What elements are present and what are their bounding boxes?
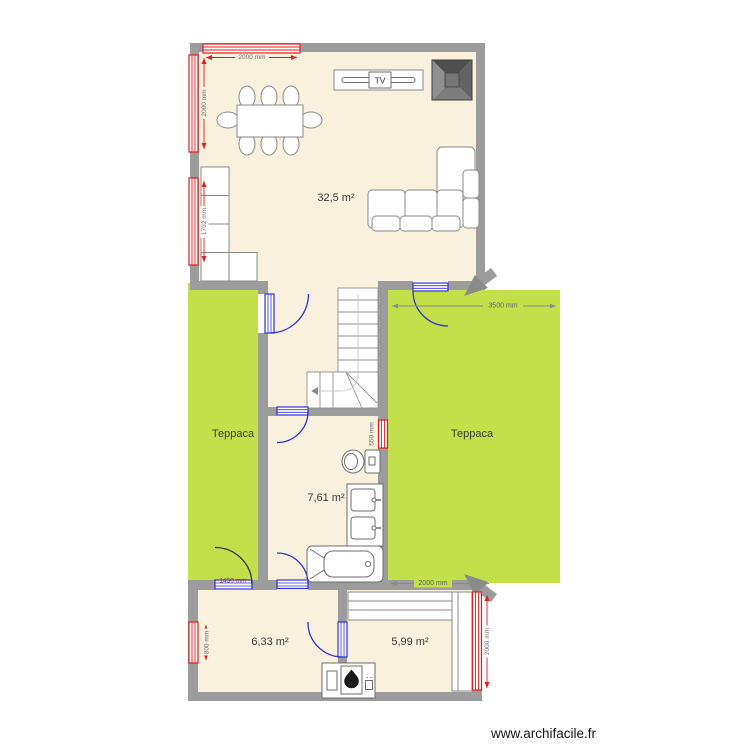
svg-text:2000 mm: 2000 mm bbox=[418, 580, 447, 587]
wall-living-bottom-mid[interactable] bbox=[378, 281, 413, 290]
living-area-label: 32,5 m² bbox=[317, 192, 355, 204]
dimension-window-bathroom: 550 mm bbox=[369, 422, 376, 445]
wall-bottom-block-top-1[interactable] bbox=[188, 580, 215, 590]
bathtub-icon[interactable] bbox=[307, 546, 383, 582]
terrace-right-label: Терраса bbox=[451, 428, 494, 440]
wall-hall-left[interactable] bbox=[258, 333, 268, 590]
svg-text:550 mm: 550 mm bbox=[369, 422, 376, 445]
svg-text:2000 mm: 2000 mm bbox=[238, 54, 265, 61]
room-bottom-right-area-label: 5,99 m² bbox=[391, 636, 429, 648]
wall-living-bottom-left[interactable] bbox=[190, 281, 268, 290]
svg-text:800 mm: 800 mm bbox=[204, 631, 211, 654]
window-bottom-right[interactable] bbox=[473, 592, 482, 690]
sink bbox=[351, 489, 375, 511]
toilet-icon[interactable] bbox=[342, 450, 380, 473]
window-bathroom[interactable] bbox=[379, 420, 388, 448]
tub-faucet bbox=[366, 562, 371, 567]
svg-text:3500 mm: 3500 mm bbox=[488, 303, 517, 310]
floor-plan-svg: TV bbox=[0, 0, 750, 750]
bathroom-area-label: 7,61 m² bbox=[307, 492, 345, 504]
watermark: www.archifacile.fr bbox=[490, 726, 597, 741]
boiler-control bbox=[366, 681, 373, 690]
tv-stand[interactable]: TV bbox=[334, 70, 423, 90]
window-bottom-left[interactable] bbox=[189, 622, 198, 663]
window-top[interactable] bbox=[203, 44, 300, 53]
svg-text:2000 mm: 2000 mm bbox=[201, 89, 208, 116]
chair[interactable] bbox=[217, 112, 239, 128]
wall-bath-top-left[interactable] bbox=[268, 407, 277, 416]
fireplace-icon[interactable] bbox=[432, 60, 472, 100]
terrace-left-label: Терраса bbox=[212, 428, 255, 440]
dimension-window-bottom-left: 800 mm bbox=[203, 625, 211, 660]
sink bbox=[351, 517, 375, 539]
dimension-window-bottom-right: 2000 mm bbox=[484, 595, 492, 688]
door-width-label: 1450 mm bbox=[219, 578, 246, 585]
window-left-upper[interactable] bbox=[189, 55, 198, 152]
boiler-unit[interactable] bbox=[322, 663, 375, 698]
sink-vanity[interactable] bbox=[347, 484, 383, 546]
floor-plan-canvas: TV bbox=[0, 0, 750, 750]
window-left-lower[interactable] bbox=[189, 178, 198, 265]
svg-text:1792 mm: 1792 mm bbox=[201, 208, 208, 235]
dining-table[interactable] bbox=[237, 105, 303, 137]
tv-label: TV bbox=[375, 76, 386, 86]
svg-text:2000 mm: 2000 mm bbox=[484, 628, 491, 655]
wall-hall-left-stub[interactable] bbox=[258, 290, 268, 294]
wall-bottom-block-top-2[interactable] bbox=[252, 580, 277, 590]
wall-bottom-mid-upper[interactable] bbox=[338, 590, 347, 622]
tall-cabinet[interactable] bbox=[452, 592, 472, 691]
room-bottom-left-area-label: 6,33 m² bbox=[251, 636, 289, 648]
